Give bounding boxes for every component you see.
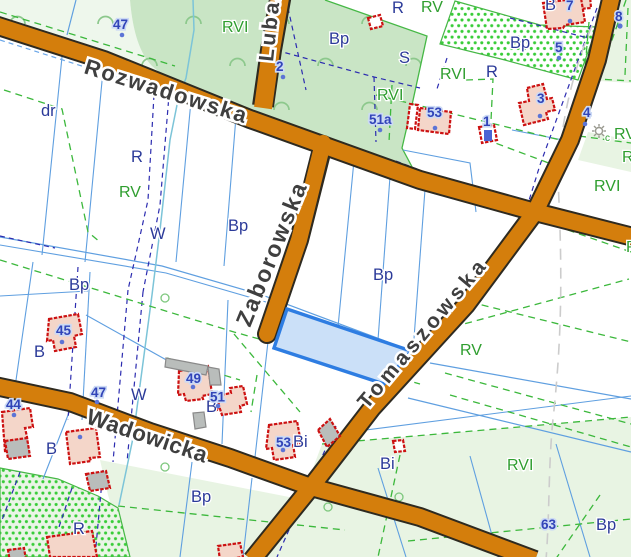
svg-text:Bp: Bp: [596, 516, 616, 534]
svg-text:RVI: RVI: [507, 457, 533, 474]
svg-text:B: B: [46, 440, 57, 458]
svg-text:Bp: Bp: [329, 30, 349, 48]
svg-text:R: R: [73, 520, 85, 538]
svg-text:R: R: [131, 148, 143, 166]
svg-text:47: 47: [91, 385, 106, 400]
svg-text:RV: RV: [421, 0, 443, 16]
svg-text:W: W: [150, 225, 166, 243]
svg-text:51: 51: [210, 390, 226, 405]
svg-text:B: B: [34, 343, 45, 361]
svg-text:Bp: Bp: [510, 34, 530, 52]
svg-text:W: W: [131, 386, 147, 404]
svg-text:Bp: Bp: [228, 217, 248, 235]
svg-text:B: B: [545, 0, 556, 14]
svg-text:5: 5: [555, 40, 563, 55]
svg-text:c: c: [605, 133, 610, 144]
svg-text:47: 47: [113, 17, 128, 32]
svg-text:2: 2: [276, 59, 284, 74]
svg-text:RVI: RVI: [440, 66, 466, 83]
svg-text:63: 63: [541, 517, 557, 532]
svg-text:45: 45: [56, 323, 72, 338]
svg-text:RV: RV: [614, 126, 631, 143]
svg-text:RVI: RVI: [377, 87, 403, 104]
svg-text:Bp: Bp: [191, 488, 211, 506]
svg-text:4: 4: [583, 105, 591, 120]
svg-text:RVI: RVI: [222, 19, 248, 36]
svg-text:3: 3: [537, 91, 545, 106]
svg-text:Bi: Bi: [293, 433, 308, 451]
svg-text:Bp: Bp: [373, 266, 393, 284]
svg-text:RVI: RVI: [594, 178, 620, 195]
svg-text:R: R: [392, 0, 404, 17]
svg-text:R: R: [622, 149, 631, 166]
svg-text:RV: RV: [119, 184, 141, 201]
svg-text:8: 8: [615, 9, 623, 24]
svg-text:53: 53: [276, 435, 292, 450]
svg-text:RV: RV: [460, 342, 482, 359]
svg-text:Bp: Bp: [69, 276, 89, 294]
svg-text:49: 49: [186, 371, 201, 386]
svg-text:44: 44: [6, 397, 22, 412]
svg-text:R: R: [626, 239, 631, 256]
svg-text:7: 7: [566, 0, 574, 13]
svg-text:1: 1: [483, 114, 491, 129]
svg-text:53: 53: [427, 105, 443, 120]
svg-text:51a: 51a: [369, 112, 392, 127]
svg-text:R: R: [486, 63, 498, 81]
svg-text:dr: dr: [41, 102, 56, 120]
svg-text:S: S: [399, 49, 410, 67]
svg-text:Bi: Bi: [380, 455, 395, 473]
